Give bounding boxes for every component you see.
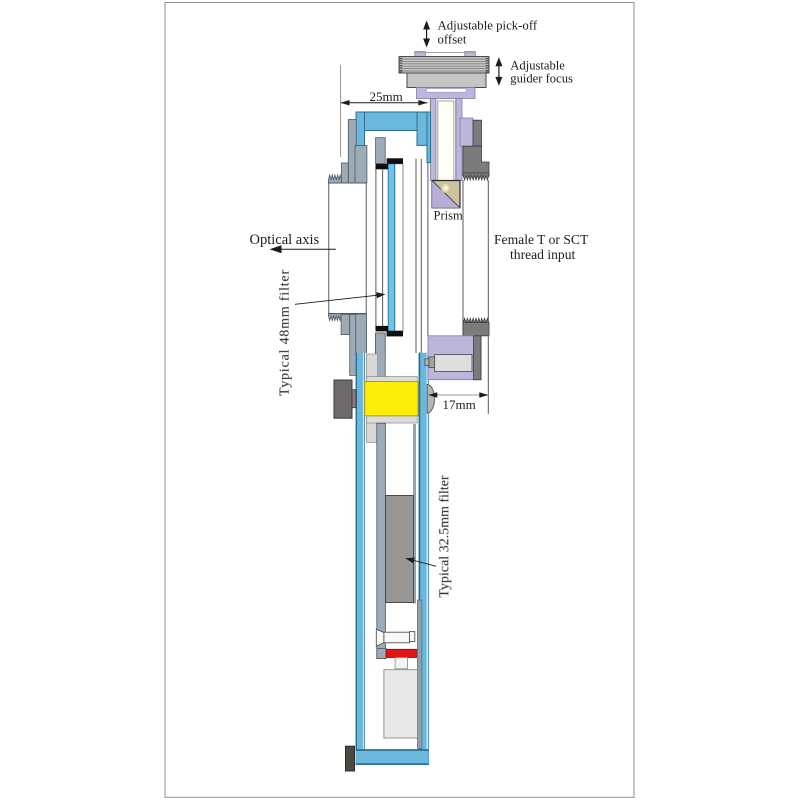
svg-text:thread input: thread input [510,247,576,262]
svg-text:Adjustable pick-off: Adjustable pick-off [438,19,538,33]
svg-text:Adjustable: Adjustable [510,59,565,73]
svg-text:Typical 48mm filter: Typical 48mm filter [277,269,292,396]
svg-text:Typical 32.5mm filter: Typical 32.5mm filter [438,475,453,598]
svg-text:Prism: Prism [434,208,463,222]
svg-text:Optical axis: Optical axis [250,232,320,248]
svg-text:Female T or SCT: Female T or SCT [494,232,589,247]
svg-text:guider focus: guider focus [510,72,573,86]
svg-text:offset: offset [438,33,467,47]
svg-text:25mm: 25mm [370,89,403,104]
svg-text:17mm: 17mm [443,397,476,412]
